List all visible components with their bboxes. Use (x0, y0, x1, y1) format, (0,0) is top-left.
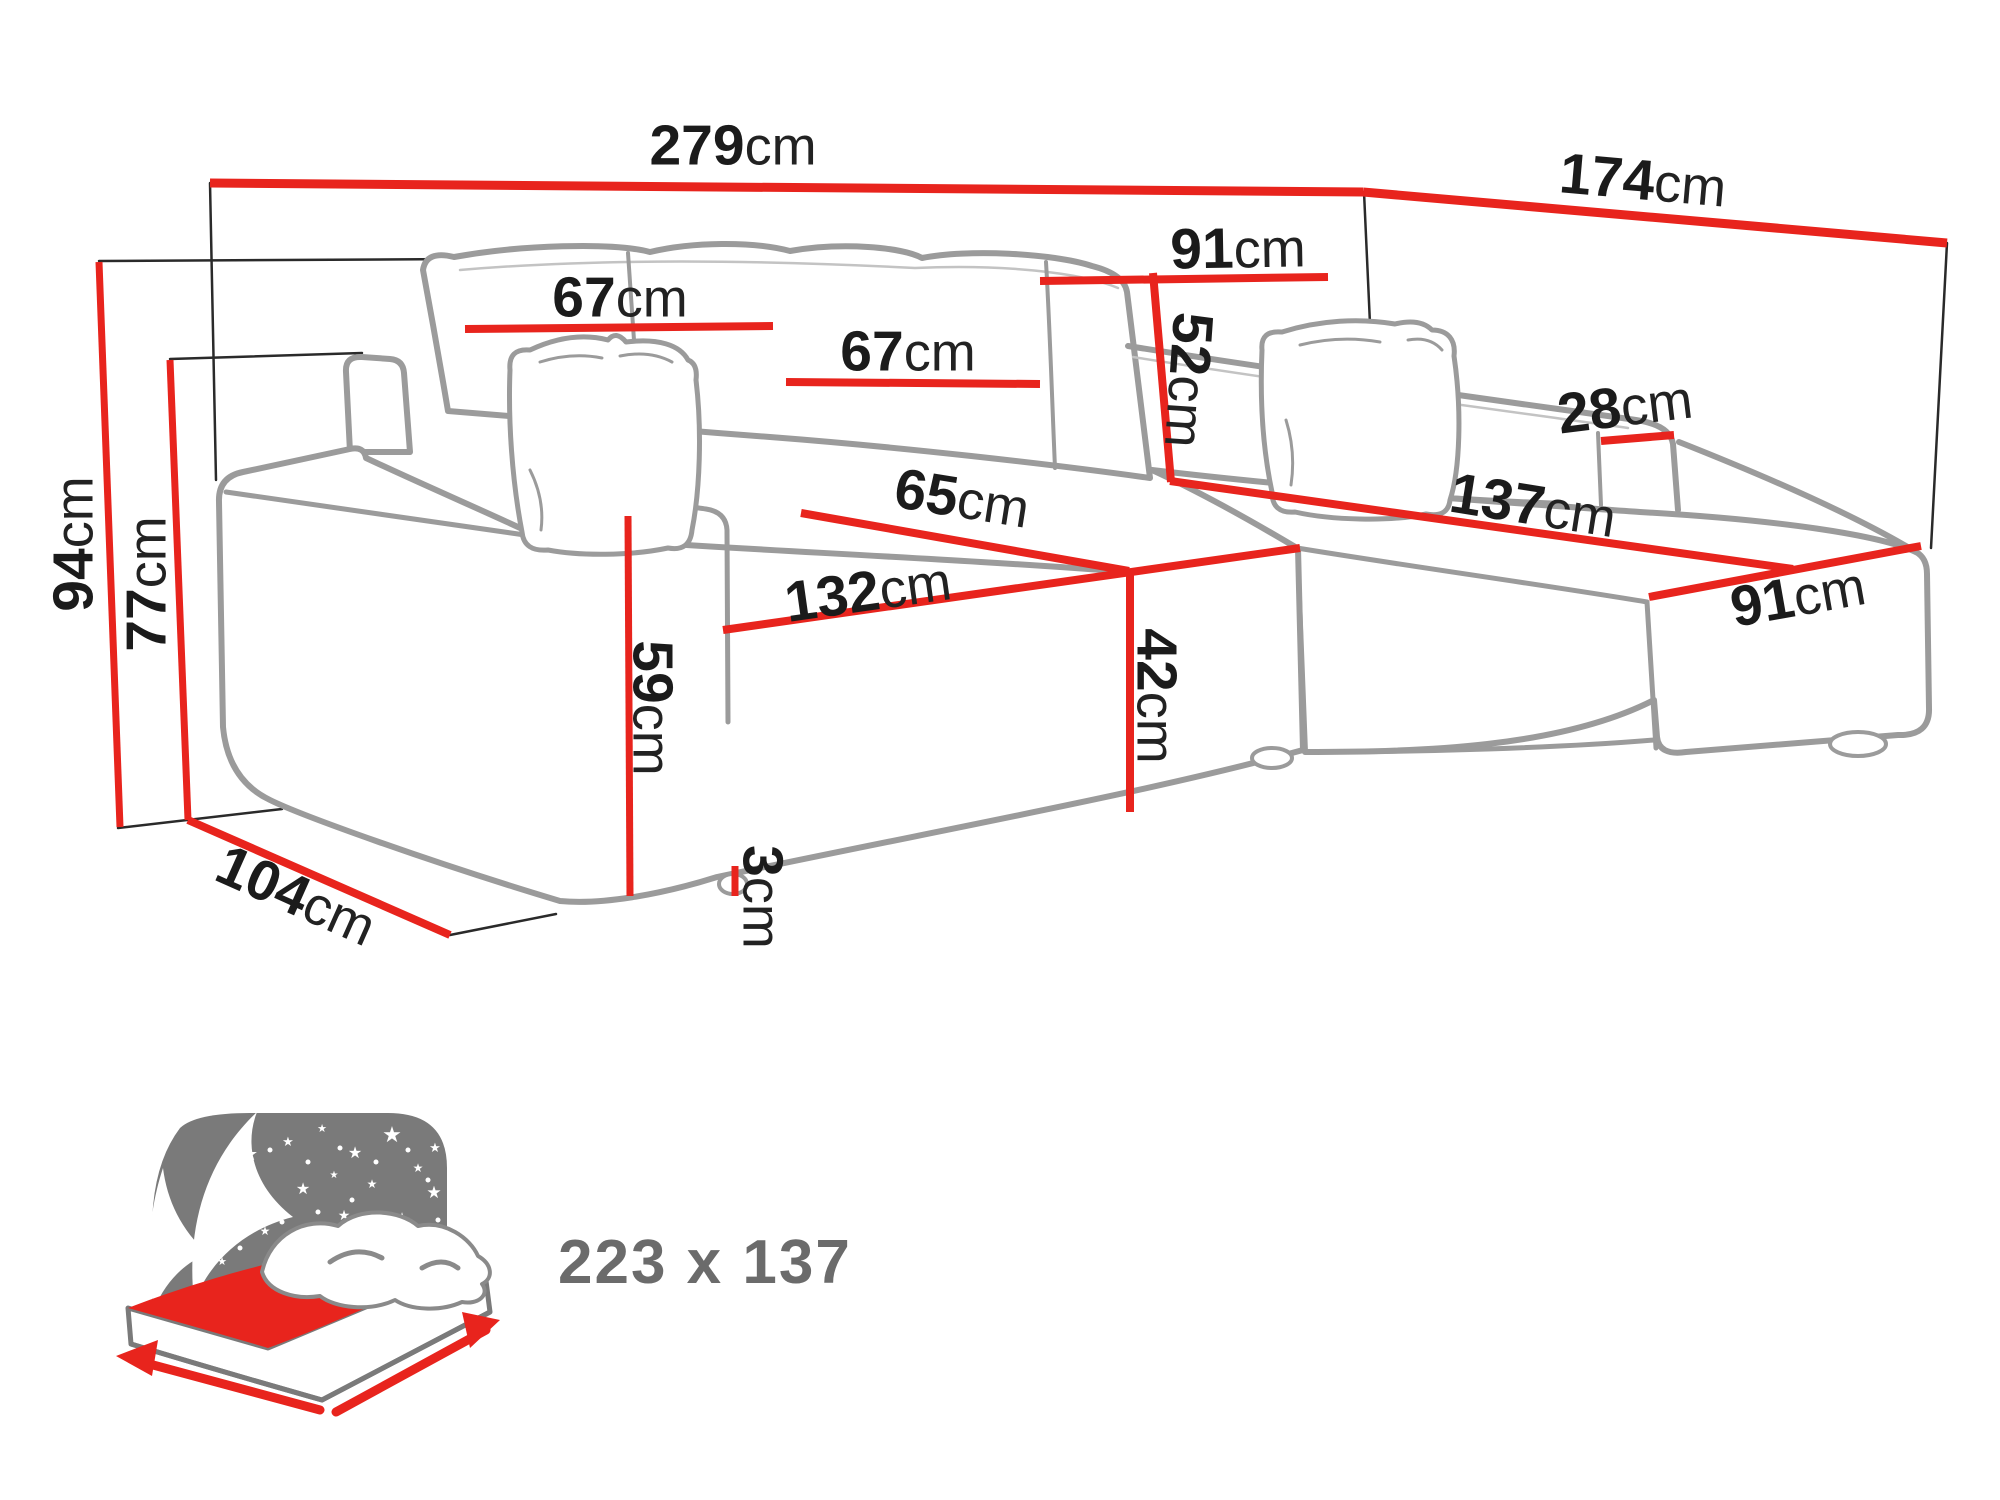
sofa-drawing (219, 244, 1929, 902)
sofa-foot (1830, 732, 1886, 756)
right-armrest-edge (1598, 433, 1601, 505)
svg-text:★: ★ (317, 1123, 327, 1135)
sofa-line-art: ★ ★ ★ ★ ★ ★ ★ ★ ★ ★ ★ ★ ★ ★ ★ ★ ★ ★ ★ ★ (0, 0, 2000, 1500)
sleep-function-icon: ★ ★ ★ ★ ★ ★ ★ ★ ★ ★ ★ ★ ★ ★ ★ ★ ★ ★ ★ ★ (116, 1112, 500, 1412)
bed-size-label: 223 x 137 (558, 1232, 852, 1294)
svg-text:★: ★ (217, 1256, 227, 1268)
dimension-line-back-cushion-left-width (465, 326, 773, 329)
dimension-line-right-armrest-width (1601, 435, 1674, 441)
back-post-left (346, 357, 410, 452)
svg-text:★: ★ (260, 1224, 271, 1238)
dimension-line-armrest-height (170, 360, 188, 820)
dimension-line-total-width (210, 183, 1363, 192)
dimension-line-back-section-width (1040, 277, 1328, 281)
svg-text:★: ★ (413, 1161, 424, 1175)
svg-text:★: ★ (348, 1145, 362, 1162)
dimension-line-back-cushion-mid-width (786, 382, 1040, 384)
svg-text:★: ★ (296, 1181, 310, 1198)
dimension-diagram: ★ ★ ★ ★ ★ ★ ★ ★ ★ ★ ★ ★ ★ ★ ★ ★ ★ ★ ★ ★ (0, 0, 2000, 1500)
svg-text:★: ★ (367, 1177, 378, 1191)
svg-text:★: ★ (215, 1193, 226, 1207)
dimension-line-total-height (99, 262, 120, 827)
svg-text:★: ★ (282, 1134, 294, 1149)
dimension-line-front-height (628, 516, 630, 896)
sofa-foot (1252, 748, 1292, 768)
dimension-line-backrest-height (1153, 273, 1171, 482)
svg-text:★: ★ (242, 1144, 258, 1164)
dimension-line-total-depth-right (1363, 192, 1947, 243)
pillow-left (510, 335, 700, 554)
svg-text:★: ★ (330, 1170, 339, 1181)
pillow-right (1261, 321, 1459, 519)
svg-text:★: ★ (426, 1183, 441, 1202)
svg-text:★: ★ (429, 1140, 441, 1155)
blanket (262, 1212, 490, 1308)
svg-text:★: ★ (382, 1122, 402, 1147)
